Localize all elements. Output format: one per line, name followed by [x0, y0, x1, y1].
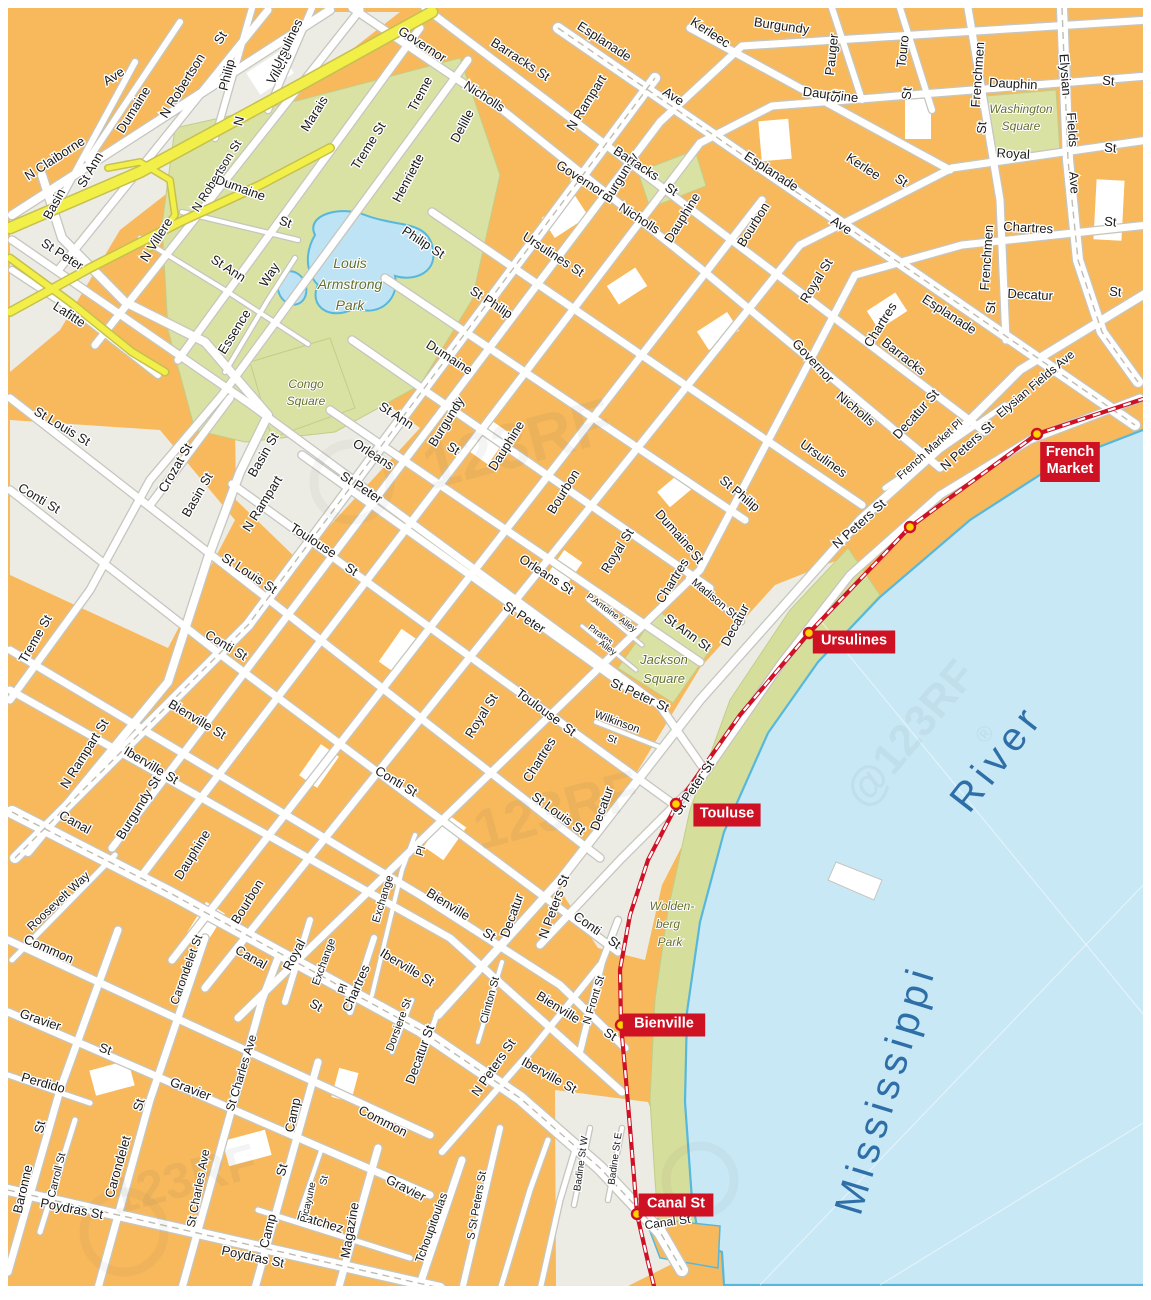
- street-label: Elysian: [1057, 53, 1075, 96]
- station-dot: [671, 799, 681, 809]
- park-label: Park: [658, 935, 684, 949]
- street-label: St: [1109, 284, 1123, 300]
- park-label: Armstrong: [317, 276, 383, 292]
- street-label: Dauphin: [989, 75, 1038, 93]
- park-label: Jackson: [639, 652, 688, 667]
- station-label: Canal St: [647, 1196, 705, 1212]
- park-label: Park: [336, 297, 366, 313]
- street-label: St: [1104, 140, 1118, 156]
- park-label: Square: [643, 671, 685, 686]
- station-label: Touluse: [700, 806, 755, 822]
- street-label: St: [983, 301, 999, 315]
- park-label: Wolden-: [650, 899, 695, 913]
- map-screenshot: 123RF123RF@123RF123RF® N ClaiborneAveN R…: [0, 0, 1151, 1300]
- station-dot: [905, 522, 915, 532]
- street-label: St: [898, 86, 914, 100]
- street-label: Chartres: [1003, 219, 1054, 237]
- park-label: berg: [656, 917, 680, 931]
- street-label: St: [827, 89, 843, 103]
- map-canvas: 123RF123RF@123RF123RF® N ClaiborneAveN R…: [0, 0, 1151, 1300]
- street-label: St: [1104, 214, 1118, 230]
- station-label: Ursulines: [821, 633, 887, 649]
- station-dot: [1032, 429, 1042, 439]
- station-label: Bienville: [634, 1016, 694, 1032]
- street-label: St: [974, 121, 990, 135]
- street-label: St: [1102, 73, 1116, 89]
- park-label: Square: [287, 394, 326, 408]
- street-label: Fields: [1064, 112, 1081, 148]
- street-label: Ave: [1066, 171, 1083, 194]
- street-label: Decatur: [1007, 286, 1054, 303]
- park-label: Louis: [333, 255, 366, 271]
- park-label: Washington: [989, 102, 1052, 116]
- station-dot: [804, 628, 814, 638]
- street-label: Royal: [996, 145, 1030, 162]
- station-label: French: [1046, 444, 1094, 460]
- park-label: Congo: [288, 377, 324, 391]
- park-label: Square: [1002, 119, 1041, 133]
- building-gap: [758, 119, 791, 161]
- station-label: Market: [1047, 461, 1094, 477]
